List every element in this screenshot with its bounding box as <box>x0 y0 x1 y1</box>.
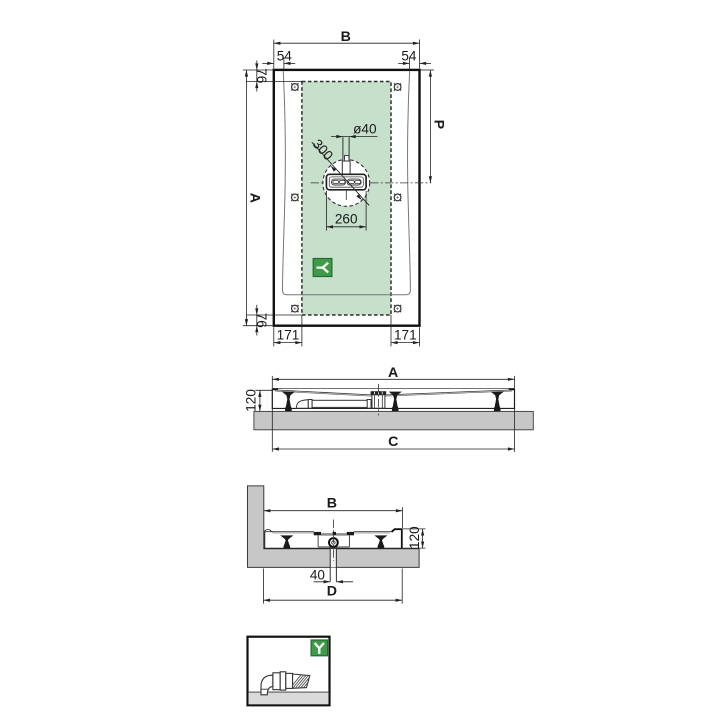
svg-text:B: B <box>341 29 351 45</box>
svg-text:ø40: ø40 <box>353 122 377 137</box>
svg-text:171: 171 <box>394 327 417 342</box>
svg-text:120: 120 <box>244 389 259 412</box>
svg-text:54: 54 <box>277 48 293 63</box>
svg-text:D: D <box>327 584 337 600</box>
svg-text:C: C <box>388 434 398 450</box>
svg-text:P: P <box>430 120 446 129</box>
svg-text:54: 54 <box>401 48 417 63</box>
svg-text:171: 171 <box>277 327 300 342</box>
svg-text:A: A <box>388 365 398 381</box>
svg-text:120: 120 <box>407 526 422 549</box>
svg-text:40: 40 <box>310 567 326 582</box>
svg-text:B: B <box>327 496 337 512</box>
svg-text:260: 260 <box>335 211 358 226</box>
svg-text:A: A <box>247 193 263 203</box>
svg-text:76: 76 <box>254 68 269 83</box>
